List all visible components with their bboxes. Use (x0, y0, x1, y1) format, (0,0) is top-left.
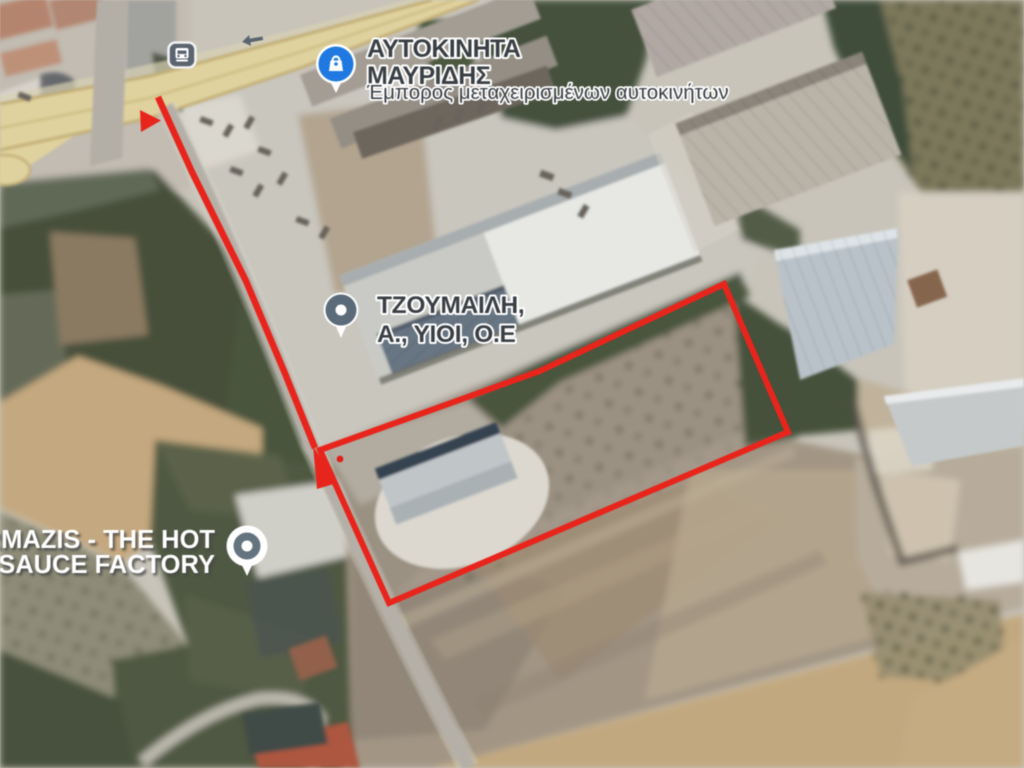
svg-text:ARMAZIS - THE HOT: ARMAZIS - THE HOT (0, 526, 215, 554)
svg-text:ΑΥΤΟΚΙΝΗΤΑ: ΑΥΤΟΚΙΝΗΤΑ (367, 35, 521, 63)
svg-text:ΤΖΟΥΜΑΙΛΗ,: ΤΖΟΥΜΑΙΛΗ, (377, 292, 524, 319)
svg-text:SAUCE FACTORY: SAUCE FACTORY (0, 551, 215, 579)
svg-text:Έμπορος μεταχειρισμένων αυτοκι: Έμπορος μεταχειρισμένων αυτοκινήτων (366, 81, 729, 104)
svg-text:Α., ΥΙΟΙ, Ο.Ε: Α., ΥΙΟΙ, Ο.Ε (377, 321, 516, 348)
